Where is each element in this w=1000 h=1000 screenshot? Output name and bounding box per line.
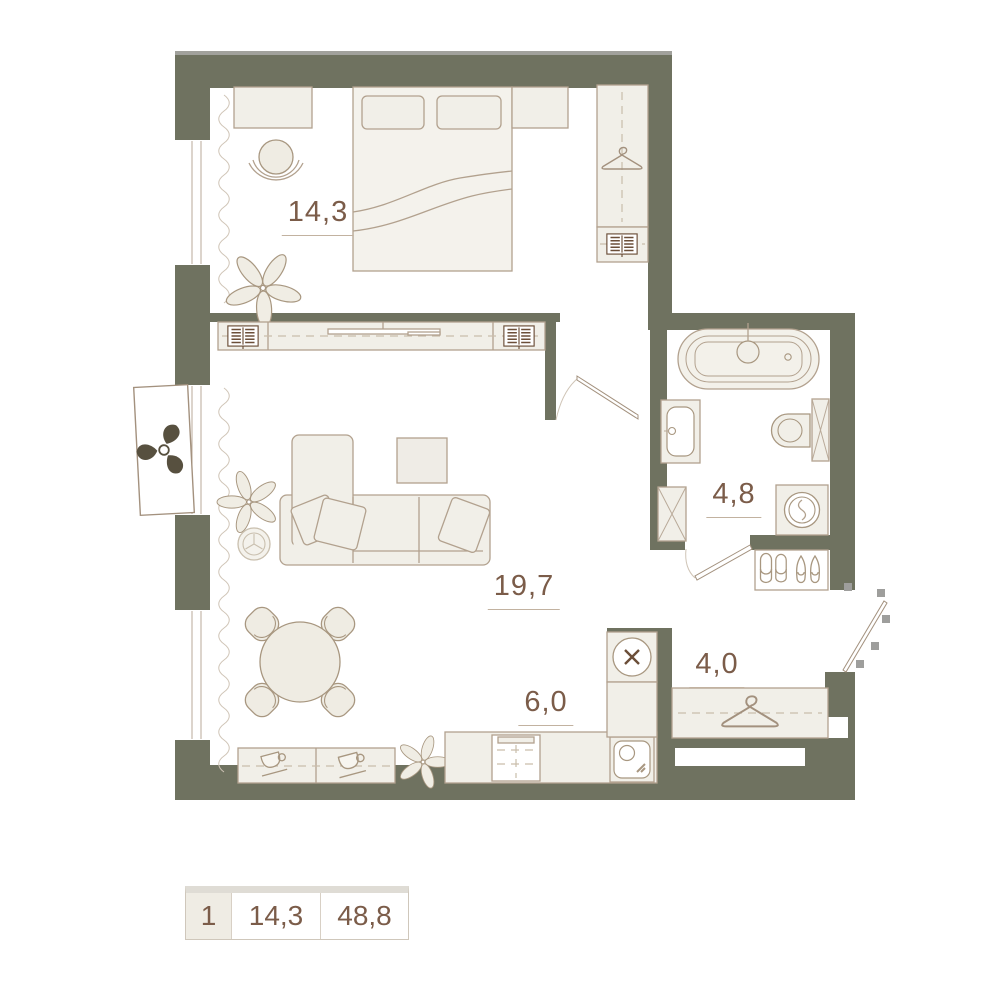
wall-bathroom-top: [648, 313, 855, 330]
windows: [131, 140, 210, 740]
stool-icon: [238, 528, 270, 560]
shower-cabinet-icon: [658, 487, 686, 541]
radiator-icon: [228, 326, 258, 349]
unit-legend[interactable]: 1 14,3 48,8: [185, 886, 409, 940]
wall-right: [830, 543, 855, 590]
wall-right-upper: [648, 55, 672, 313]
unit-number: 1: [186, 893, 231, 939]
coffee-table-icon: [397, 438, 447, 483]
bedroom-closet: [597, 85, 648, 262]
bathroom-cabinet: [812, 399, 829, 461]
kitchen-area-label: 6,0: [518, 686, 573, 726]
sideboard-icon: [238, 748, 395, 783]
wall-top-edge: [175, 51, 672, 55]
kitchen-sink-icon: [610, 737, 654, 782]
sofa-icon: [280, 435, 491, 565]
nightstand-icon: [512, 87, 568, 128]
door-leaf-icon: [843, 601, 887, 672]
shoe-shelf: [755, 550, 828, 590]
washbasin-icon: [661, 400, 700, 463]
wall-niche: [675, 748, 805, 766]
wall-notch: [828, 717, 848, 738]
wall-left: [175, 265, 210, 385]
living-room-area-label: 19,7: [488, 570, 560, 610]
dining-set: [241, 603, 359, 721]
hallway: [672, 550, 828, 738]
legend-room-area: 14,3: [231, 893, 320, 939]
dining-table-icon: [260, 622, 340, 702]
pillow-icon: [362, 96, 424, 129]
floor-plan-drawing: [0, 0, 1000, 1000]
wall-bathroom-bottom: [750, 535, 830, 550]
bathroom-area-label: 4,8: [706, 478, 761, 518]
wall-kitchen: [657, 628, 672, 765]
oven-icon: [492, 735, 540, 781]
radiator-icon: [504, 326, 534, 349]
wall-top: [175, 55, 672, 88]
pillow-icon: [437, 96, 501, 129]
office-chair-icon: [249, 140, 303, 180]
curtain-icon: [219, 612, 230, 772]
toilet-icon: [772, 414, 811, 447]
window-bedroom: [176, 140, 210, 265]
wall-right: [830, 313, 855, 543]
door-leaf-icon: [695, 545, 752, 580]
legend-total-area: 48,8: [320, 893, 408, 939]
living-room-door: [556, 376, 638, 420]
wall-bottom-right: [655, 738, 855, 800]
desk-icon: [234, 87, 312, 128]
cooktop-icon: [607, 632, 657, 682]
bathtub-icon: [678, 323, 819, 389]
tv-console: [218, 322, 545, 350]
floor-plan: 14,3 19,7 6,0 4,8 4,0 1 14,3 48,8: [0, 0, 1000, 1000]
washing-machine-icon: [776, 485, 828, 535]
hall-wardrobe: [672, 688, 828, 738]
curtain-icon: [219, 95, 230, 303]
living-room: [206, 322, 545, 790]
ac-unit: [131, 385, 195, 516]
hallway-area-label: 4,0: [689, 648, 744, 688]
radiator-icon: [607, 234, 637, 257]
wall-stub: [545, 313, 556, 420]
kitchen-column: [607, 682, 657, 737]
wall-left: [175, 55, 210, 140]
pillow-icon: [313, 497, 366, 550]
entrance-door: [843, 583, 890, 672]
wall-left: [175, 515, 210, 610]
bedroom-area-label: 14,3: [282, 196, 354, 236]
bathroom-door: [686, 545, 752, 580]
window-dining: [176, 610, 210, 740]
bed-icon: [353, 87, 512, 271]
door-leaf-icon: [577, 376, 638, 419]
